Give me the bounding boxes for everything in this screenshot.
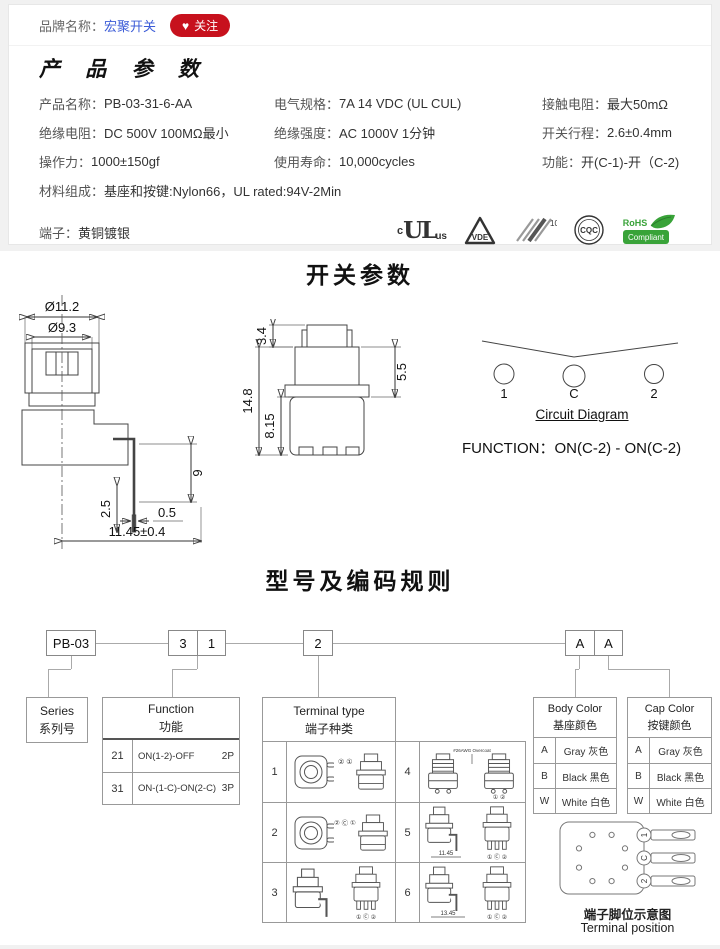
spec-label: 使用寿命： xyxy=(274,152,339,171)
spec-item: 端子：黄铜镀银 xyxy=(39,218,130,247)
terminal-num: 1 xyxy=(263,742,287,802)
spec-value: 1000±150gf xyxy=(91,154,160,169)
terminal-table-left: Terminal type 端子种类 1 ② ① 2 ② Ⓒ ① xyxy=(262,697,396,923)
spec-label: 开关行程： xyxy=(542,123,607,142)
circuit-pin-c: C xyxy=(569,386,578,399)
brand-link[interactable]: 宏聚开关 xyxy=(104,16,156,35)
certification-icons: cULus VDE 10 CQC RoHS Co xyxy=(397,213,681,247)
terminal-row: 1 ② ① xyxy=(263,742,395,802)
spec-last-row: 端子：黄铜镀银 cULus VDE 10 CQC xyxy=(39,205,681,247)
terminal-diagram-6: 13.45 ① Ⓒ ② xyxy=(420,863,525,922)
color-row: AGray 灰色 xyxy=(628,738,711,763)
awg-note: #26AWG Overcoat xyxy=(453,748,491,753)
terminal-diagram-3: ① Ⓒ ② xyxy=(287,863,395,922)
spec-item: 材料组成：基座和按键:Nylon66，UL rated:94V-2Min xyxy=(39,176,681,205)
follow-label: 关注 xyxy=(194,17,218,34)
tp-pin-2: 2 xyxy=(640,878,649,883)
function-row: 21 ON(1-2)-OFF 2P xyxy=(103,740,239,772)
terminal-table-right: 4 #26AWG Overcoat ① ② 5 11.45 xyxy=(395,741,526,923)
code-cap-color: A xyxy=(594,631,622,655)
terminal-num: 3 xyxy=(263,863,287,922)
spec-value: DC 500V 100MΩ最小 xyxy=(104,123,229,142)
color-code: W xyxy=(534,789,556,813)
terminal-row: 3 ① Ⓒ ② xyxy=(263,862,395,922)
code-func-1: 3 xyxy=(169,631,197,655)
function-code: 21 xyxy=(103,740,133,772)
connector xyxy=(197,656,198,669)
spec-label: 产品名称： xyxy=(39,94,104,113)
spec-item: 绝缘电阻：DC 500V 100MΩ最小 xyxy=(39,118,274,147)
circuit-pin-2: 2 xyxy=(650,386,657,399)
connector xyxy=(575,669,576,697)
code-box-function: 31 xyxy=(168,630,226,656)
function-poles: 3P xyxy=(222,773,239,804)
color-row: BBlack 黑色 xyxy=(628,763,711,788)
cap-color-table: Cap Color 按键颜色 AGray 灰色 BBlack 黑色 WWhite… xyxy=(627,697,712,814)
spec-label: 绝缘强度： xyxy=(274,123,339,142)
function-header-zh: 功能 xyxy=(103,718,239,736)
code-body-color: A xyxy=(566,631,594,655)
dim-label: 13.45 xyxy=(440,911,456,917)
vde-mark-icon: VDE xyxy=(463,215,497,246)
color-name: White 白色 xyxy=(650,789,711,813)
terminal-row: 5 11.45 ① Ⓒ ② xyxy=(396,802,525,862)
series-label-zh: 系列号 xyxy=(27,720,87,738)
code-box-terminal: 2 xyxy=(303,630,333,656)
spec-value: 10,000cycles xyxy=(339,154,415,169)
switch-params-section: 开关参数 Ø11.2 Ø9.3 9 2.5 0.5 xyxy=(0,251,720,557)
dim-label: 5.5 xyxy=(394,363,409,381)
brand-label: 品牌名称： xyxy=(39,16,104,35)
connector xyxy=(579,656,580,669)
spec-label: 功能： xyxy=(542,152,581,171)
terminal-diagram-2: ② Ⓒ ① xyxy=(287,803,395,862)
coding-section: 型号及编码规则 PB-03 31 2 AA Series 系列号 Functio… xyxy=(0,557,720,945)
color-code: W xyxy=(628,789,650,813)
k-mark-10-icon: 10 xyxy=(513,215,557,245)
pin-labels: ① Ⓒ ② xyxy=(356,913,377,921)
front-view-drawing: 3.4 14.8 8.15 5.5 xyxy=(243,319,421,491)
product-card: 品牌名称： 宏聚开关 ♥ 关注 产 品 参 数 产品名称：PB-03-31-6-… xyxy=(8,4,712,245)
spec-label: 操作力： xyxy=(39,152,91,171)
color-name: Gray 灰色 xyxy=(556,738,616,763)
spec-value: 开(C-1)-开（C-2) xyxy=(581,152,679,171)
spec-item: 使用寿命：10,000cycles xyxy=(274,147,542,176)
spec-item: 功能：开(C-1)-开（C-2) xyxy=(542,147,681,176)
body-color-header-en: Body Color xyxy=(534,701,616,718)
spec-label: 电气规格： xyxy=(274,94,339,113)
pin-labels: ① Ⓒ ② xyxy=(487,853,508,861)
connector xyxy=(48,669,49,697)
terminal-num: 2 xyxy=(263,803,287,862)
function-text: FUNCTION：ON(C-2) - ON(C-2) xyxy=(462,437,718,458)
color-code: A xyxy=(534,738,556,763)
spec-item: 接触电阻：最大50mΩ xyxy=(542,89,681,118)
terminal-num: 6 xyxy=(396,863,420,922)
pin-labels: ② Ⓒ ① xyxy=(334,819,356,827)
terminal-diagram-4: #26AWG Overcoat ① ② xyxy=(420,742,525,802)
terminal-diagram-1: ② ① xyxy=(287,742,395,802)
terminal-row: 4 #26AWG Overcoat ① ② xyxy=(396,742,525,802)
side-view-drawing: Ø11.2 Ø9.3 9 2.5 0.5 11.45±0.4 xyxy=(15,289,235,553)
cap-color-header-en: Cap Color xyxy=(628,701,711,718)
spec-item: 操作力：1000±150gf xyxy=(39,147,274,176)
color-row: WWhite 白色 xyxy=(534,788,616,813)
function-desc: ON-(1-C)-ON(2-C) xyxy=(133,773,222,804)
spec-value: AC 1000V 1分钟 xyxy=(339,123,435,142)
follow-button[interactable]: ♥ 关注 xyxy=(170,14,230,37)
terminal-header-en: Terminal type xyxy=(263,702,395,720)
connector xyxy=(172,669,197,670)
code-box-series: PB-03 xyxy=(46,630,96,656)
code-terminal: 2 xyxy=(314,636,321,651)
svg-text:VDE: VDE xyxy=(472,233,489,242)
connector xyxy=(608,656,609,669)
function-poles: 2P xyxy=(222,740,239,772)
heart-icon: ♥ xyxy=(182,20,189,32)
spec-value: 2.6±0.4mm xyxy=(607,125,672,140)
body-color-table: Body Color 基座颜色 AGray 灰色 BBlack 黑色 WWhit… xyxy=(533,697,617,814)
spec-value: 7A 14 VDC (UL CUL) xyxy=(339,96,461,111)
spec-value: 最大50mΩ xyxy=(607,94,668,113)
spec-item: 开关行程：2.6±0.4mm xyxy=(542,118,681,147)
function-desc: ON(1-2)-OFF xyxy=(133,740,222,772)
ul-label: UL xyxy=(403,217,435,244)
dim-label: 11.45 xyxy=(439,851,454,857)
svg-text:Compliant: Compliant xyxy=(628,233,665,242)
spec-label: 材料组成： xyxy=(39,181,104,200)
pin-labels: ② ① xyxy=(338,758,353,766)
code-series: PB-03 xyxy=(53,636,89,651)
terminal-position-caption-en: Terminal position xyxy=(540,921,715,935)
connector xyxy=(669,669,670,697)
pin-labels: ① ② xyxy=(493,794,506,800)
connector xyxy=(608,669,669,670)
body-color-header-zh: 基座颜色 xyxy=(534,718,616,735)
series-box: Series 系列号 xyxy=(26,697,88,743)
svg-text:RoHS: RoHS xyxy=(623,218,648,228)
color-name: White 白色 xyxy=(556,789,616,813)
spec-label: 绝缘电阻： xyxy=(39,123,104,142)
function-code: 31 xyxy=(103,773,133,804)
ul-us-label: us xyxy=(435,231,447,242)
cap-color-header-zh: 按键颜色 xyxy=(628,718,711,735)
spec-label: 接触电阻： xyxy=(542,94,607,113)
circuit-block: 1 C 2 Circuit Diagram FUNCTION：ON(C-2) -… xyxy=(462,327,718,458)
color-code: B xyxy=(628,764,650,788)
connector xyxy=(172,669,173,697)
spec-grid: 产品名称：PB-03-31-6-AA 电气规格：7A 14 VDC (UL CU… xyxy=(39,89,681,176)
svg-text:CQC: CQC xyxy=(580,226,598,235)
brand-bar: 品牌名称： 宏聚开关 ♥ 关注 xyxy=(9,5,711,46)
spec-value: 基座和按键:Nylon66，UL rated:94V-2Min xyxy=(104,181,341,200)
svg-text:10: 10 xyxy=(550,219,557,228)
terminal-row: 2 ② Ⓒ ① xyxy=(263,802,395,862)
spec-item: 电气规格：7A 14 VDC (UL CUL) xyxy=(274,89,542,118)
code-func-2: 1 xyxy=(197,631,225,655)
code-box-colors: AA xyxy=(565,630,623,656)
function-header-en: Function xyxy=(103,700,239,718)
dim-label: 8.15 xyxy=(262,413,277,438)
function-table: Function 功能 21 ON(1-2)-OFF 2P 31 ON-(1-C… xyxy=(102,697,240,805)
circuit-pin-1: 1 xyxy=(500,386,507,399)
spec-item: 绝缘强度：AC 1000V 1分钟 xyxy=(274,118,542,147)
color-row: WWhite 白色 xyxy=(628,788,711,813)
dim-label: 11.45±0.4 xyxy=(109,524,166,539)
terminal-num: 5 xyxy=(396,803,420,862)
terminal-diagram-5: 11.45 ① Ⓒ ② xyxy=(420,803,525,862)
function-row: 31 ON-(1-C)-ON(2-C) 3P xyxy=(103,772,239,804)
cul-us-mark-icon: cULus xyxy=(397,217,447,244)
section-title-product-params: 产 品 参 数 xyxy=(39,53,681,83)
pin-labels: ① Ⓒ ② xyxy=(487,913,508,921)
connector xyxy=(48,669,71,670)
dim-label: 2.5 xyxy=(98,500,113,518)
spec-value: 黄铜镀银 xyxy=(78,223,130,242)
dim-label: 9 xyxy=(190,469,205,476)
color-name: Gray 灰色 xyxy=(650,738,711,763)
connector xyxy=(318,656,319,697)
dim-label: 3.4 xyxy=(254,327,269,345)
color-code: B xyxy=(534,764,556,788)
cqc-mark-icon: CQC xyxy=(573,214,605,246)
dim-label: 14.8 xyxy=(243,388,255,413)
color-code: A xyxy=(628,738,650,763)
color-row: BBlack 黑色 xyxy=(534,763,616,788)
color-name: Black 黑色 xyxy=(650,764,711,788)
color-row: AGray 灰色 xyxy=(534,738,616,763)
rohs-compliant-icon: RoHS Compliant xyxy=(621,213,677,247)
series-label-en: Series xyxy=(27,702,87,720)
color-name: Black 黑色 xyxy=(556,764,616,788)
terminal-row: 6 13.45 ① Ⓒ ② xyxy=(396,862,525,922)
section-title-coding: 型号及编码规则 xyxy=(0,557,720,596)
terminal-num: 4 xyxy=(396,742,420,802)
terminal-header-zh: 端子种类 xyxy=(263,720,395,738)
spec-label: 端子： xyxy=(39,223,78,242)
connector xyxy=(71,656,72,669)
circuit-caption: Circuit Diagram xyxy=(462,407,702,422)
dim-label: 0.5 xyxy=(158,505,176,520)
tp-pin-c: C xyxy=(640,855,649,861)
spec-value: PB-03-31-6-AA xyxy=(104,96,192,111)
tp-pin-1: 1 xyxy=(640,832,649,837)
circuit-diagram: 1 C 2 xyxy=(462,327,702,399)
product-params-section: 产 品 参 数 产品名称：PB-03-31-6-AA 电气规格：7A 14 VD… xyxy=(9,46,711,255)
terminal-position-diagram: 1 C 2 xyxy=(540,819,715,899)
spec-item: 产品名称：PB-03-31-6-AA xyxy=(39,89,274,118)
section-title-switch-params: 开关参数 xyxy=(0,251,720,290)
